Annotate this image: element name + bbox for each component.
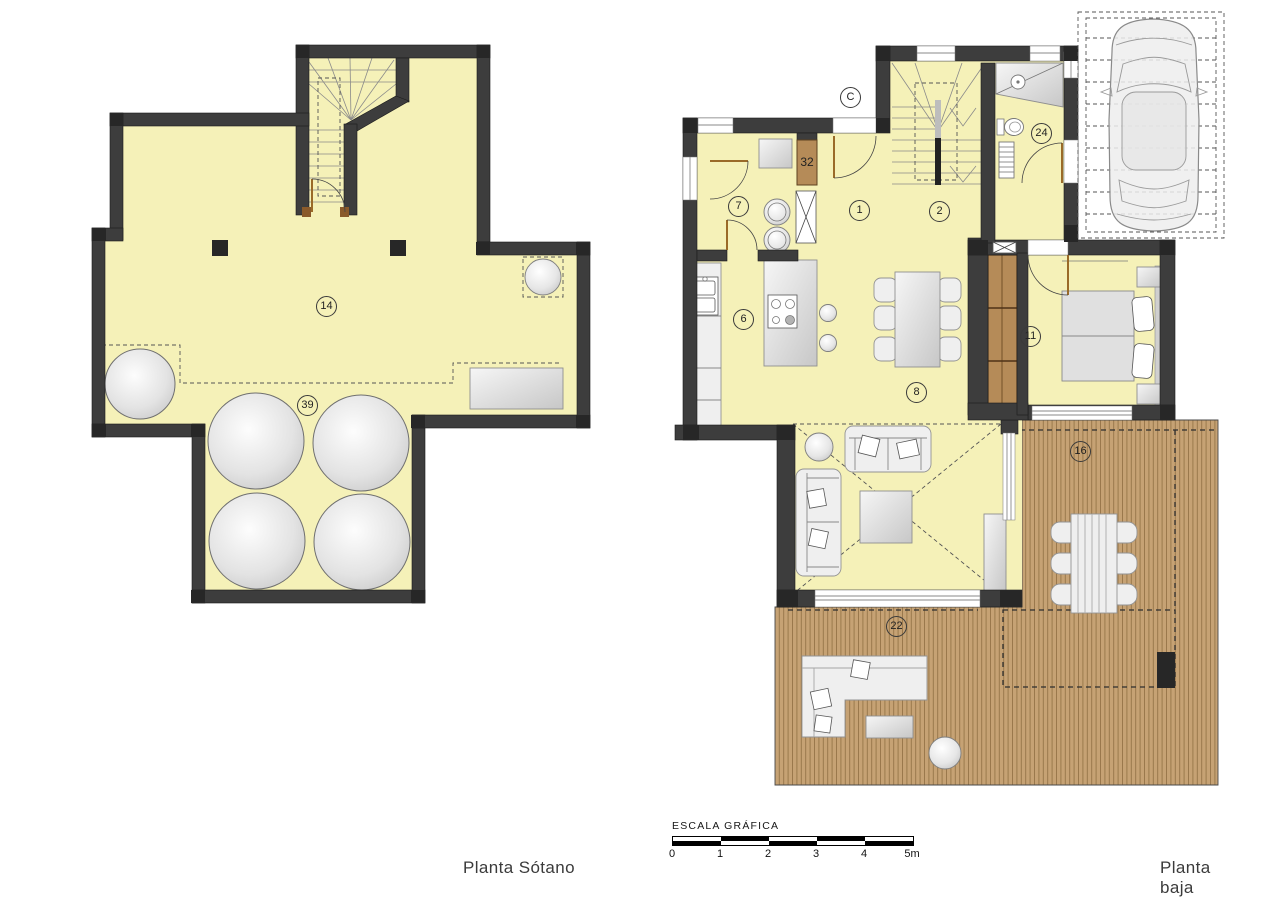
scale-ticks: 012345m xyxy=(672,848,922,862)
room-label-7: 7 xyxy=(728,196,749,217)
room-label-2: 2 xyxy=(929,201,950,222)
label-overlay: 1439C122476811162232 xyxy=(0,0,1280,900)
room-label-16: 16 xyxy=(1070,441,1091,462)
scale-tick-5m: 5m xyxy=(904,848,919,860)
room-label-11: 11 xyxy=(1020,326,1041,347)
room-label-C: C xyxy=(840,87,861,108)
scale-tick-3: 3 xyxy=(813,848,819,860)
scale-tick-1: 1 xyxy=(717,848,723,860)
room-label-14: 14 xyxy=(316,296,337,317)
room-label-6: 6 xyxy=(733,309,754,330)
scale-title: ESCALA GRÁFICA xyxy=(672,820,922,832)
scale-tick-4: 4 xyxy=(861,848,867,860)
basement-title: Planta Sótano xyxy=(463,858,575,878)
room-label-32: 32 xyxy=(800,155,813,169)
graphic-scale: ESCALA GRÁFICA 012345m xyxy=(672,820,922,862)
room-label-8: 8 xyxy=(906,382,927,403)
room-label-39: 39 xyxy=(297,395,318,416)
ground-floor-title: Planta baja xyxy=(1160,858,1240,898)
scale-tick-0: 0 xyxy=(669,848,675,860)
room-label-24: 24 xyxy=(1031,123,1052,144)
room-label-22: 22 xyxy=(886,616,907,637)
scale-tick-2: 2 xyxy=(765,848,771,860)
floorplan-sheet: 1439C122476811162232 Planta Sótano Plant… xyxy=(0,0,1280,900)
room-label-1: 1 xyxy=(849,200,870,221)
scale-bar xyxy=(672,836,914,846)
